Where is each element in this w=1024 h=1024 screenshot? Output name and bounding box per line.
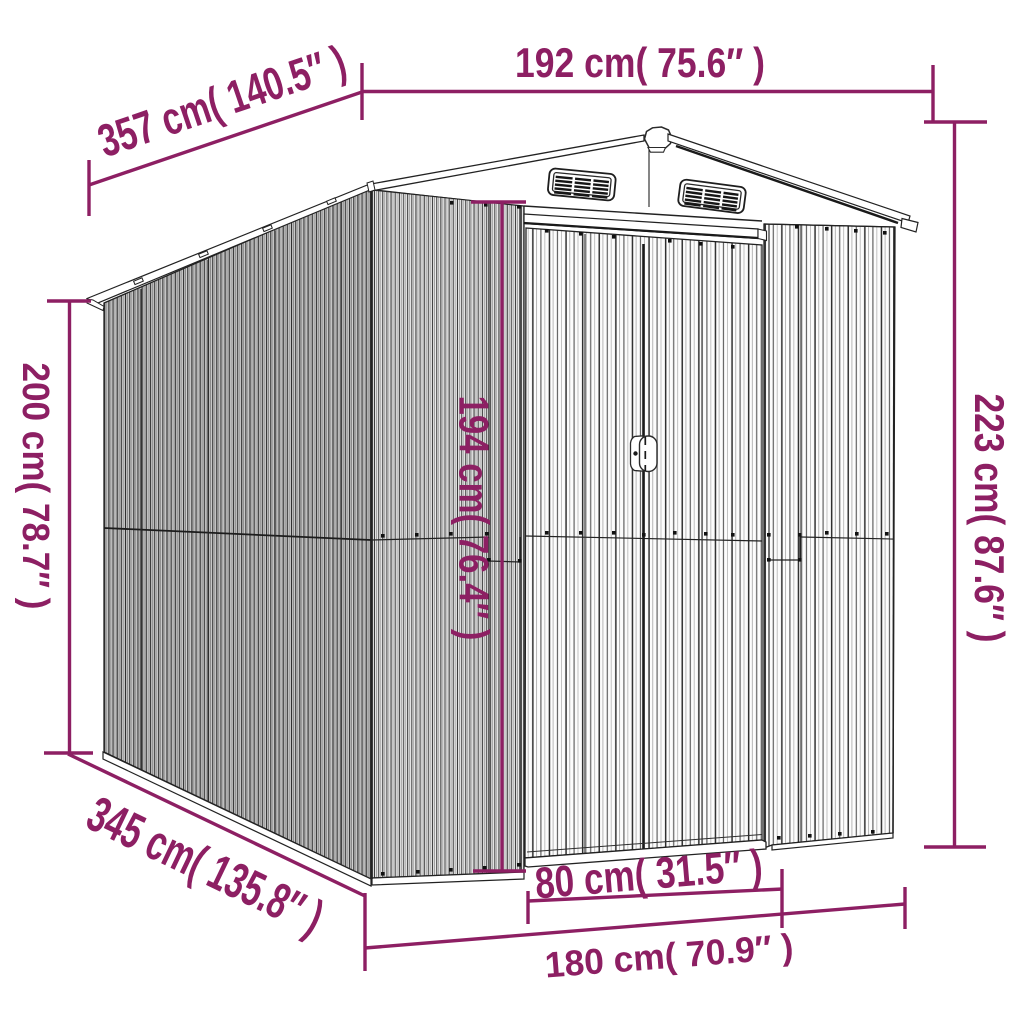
svg-text:223 cm( 87.6″ ): 223 cm( 87.6″ )	[966, 394, 1013, 643]
svg-text:192 cm( 75.6″ ): 192 cm( 75.6″ )	[515, 39, 765, 86]
svg-text:200 cm( 78.7″ ): 200 cm( 78.7″ )	[14, 363, 56, 610]
svg-text:194 cm( 76.4″ ): 194 cm( 76.4″ )	[451, 396, 498, 641]
